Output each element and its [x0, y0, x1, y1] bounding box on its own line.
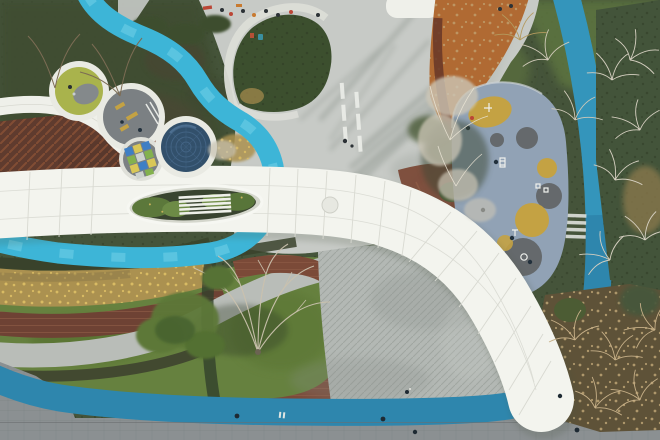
- red-bin: [250, 33, 254, 38]
- park-scene-svg: [0, 0, 660, 440]
- pod-navy: [155, 116, 217, 178]
- blue-bin: [258, 34, 263, 40]
- white-kiosk-canopy: [386, 0, 440, 18]
- aerial-park-photo: [0, 0, 660, 440]
- canopy-vent: [322, 197, 338, 213]
